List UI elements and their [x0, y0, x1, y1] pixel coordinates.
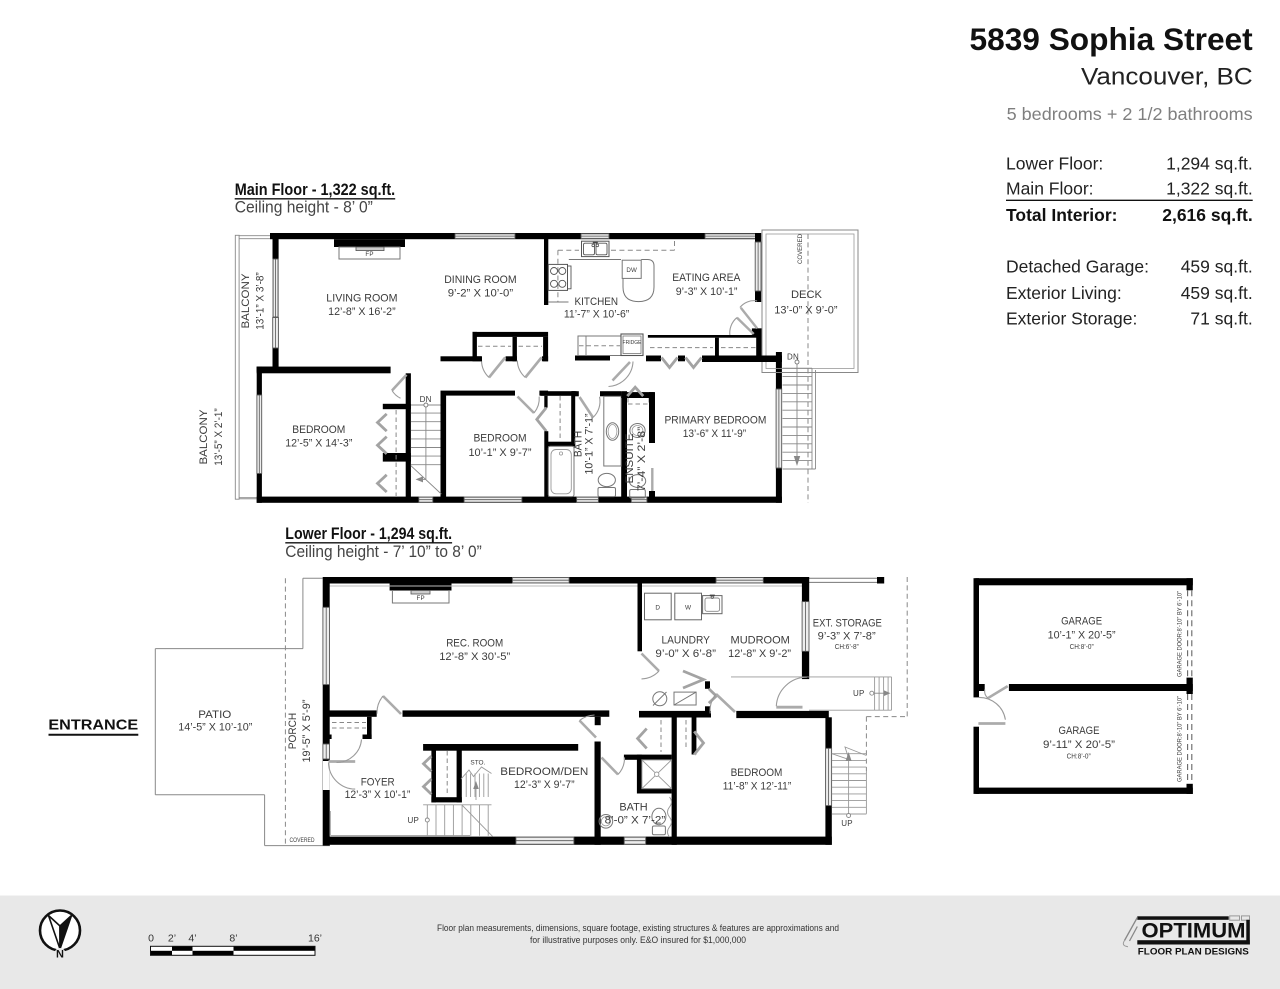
svg-text:11’-7” X 10’-6”: 11’-7” X 10’-6”: [564, 309, 630, 321]
svg-text:2’: 2’: [168, 933, 176, 945]
svg-text:BEDROOM: BEDROOM: [292, 424, 345, 436]
svg-text:OPTIMUM: OPTIMUM: [1142, 919, 1246, 943]
svg-text:Vancouver, BC: Vancouver, BC: [1081, 64, 1253, 91]
svg-text:9’-11” X 20’-5”: 9’-11” X 20’-5”: [1043, 739, 1115, 751]
svg-text:UP: UP: [841, 819, 853, 828]
svg-text:MUDROOM: MUDROOM: [731, 635, 790, 647]
svg-text:13’-1” X 3’-8”: 13’-1” X 3’-8”: [255, 272, 267, 330]
svg-text:16’: 16’: [308, 933, 322, 945]
svg-text:5839 Sophia Street: 5839 Sophia Street: [970, 21, 1254, 57]
svg-text:Ceiling height - 8’ 0”: Ceiling height - 8’ 0”: [235, 199, 373, 217]
svg-text:GARAGE DOOR:8’-10” BY 6’-10”: GARAGE DOOR:8’-10” BY 6’-10”: [1177, 696, 1184, 782]
svg-text:71 sq.ft.: 71 sq.ft.: [1190, 309, 1252, 329]
svg-text:Detached Garage:: Detached Garage:: [1006, 257, 1149, 277]
svg-text:9’-2” X 10’-0”: 9’-2” X 10’-0”: [448, 288, 514, 300]
svg-text:FP: FP: [365, 251, 373, 258]
svg-text:Floor plan measurements, dimen: Floor plan measurements, dimensions, squ…: [437, 923, 839, 934]
svg-text:459 sq.ft.: 459 sq.ft.: [1181, 257, 1253, 277]
svg-text:ENSUITE: ENSUITE: [624, 433, 636, 483]
svg-text:7’-4” X 2’-8”: 7’-4” X 2’-8”: [636, 426, 648, 491]
svg-text:10’-1” X 7’-1”: 10’-1” X 7’-1”: [584, 413, 596, 475]
svg-text:CH:6’-8”: CH:6’-8”: [835, 644, 860, 651]
svg-text:Lower Floor:: Lower Floor:: [1006, 154, 1103, 174]
svg-text:BEDROOM/DEN: BEDROOM/DEN: [500, 766, 588, 778]
svg-text:14’-5” X 10’-10”: 14’-5” X 10’-10”: [178, 722, 252, 734]
svg-text:PORCH: PORCH: [287, 713, 299, 749]
svg-text:12’-8” X 16’-2”: 12’-8” X 16’-2”: [328, 306, 396, 318]
svg-text:8’-0” X 7’-2”: 8’-0” X 7’-2”: [605, 814, 666, 826]
svg-text:PRIMARY BEDROOM: PRIMARY BEDROOM: [664, 415, 766, 427]
svg-text:12’-5” X 14’-3”: 12’-5” X 14’-3”: [285, 438, 352, 450]
svg-text:CH:8’-0”: CH:8’-0”: [1070, 644, 1095, 651]
svg-text:GARAGE: GARAGE: [1061, 616, 1102, 628]
svg-text:0: 0: [148, 933, 154, 945]
svg-text:COVERED: COVERED: [797, 234, 804, 264]
svg-text:LAUNDRY: LAUNDRY: [662, 635, 711, 647]
svg-text:W: W: [685, 605, 692, 612]
svg-text:STO.: STO.: [470, 759, 485, 766]
svg-text:Lower Floor - 1,294 sq.ft.: Lower Floor - 1,294 sq.ft.: [285, 525, 452, 543]
svg-text:9’-3” X 7’-8”: 9’-3” X 7’-8”: [818, 631, 876, 643]
svg-text:FRIDGE: FRIDGE: [623, 340, 642, 346]
svg-text:BEDROOM: BEDROOM: [473, 433, 526, 445]
svg-text:12’-8” X 9’-2”: 12’-8” X 9’-2”: [728, 648, 791, 660]
svg-text:FOYER: FOYER: [361, 776, 395, 788]
svg-text:EATING AREA: EATING AREA: [672, 272, 741, 284]
svg-text:Exterior Living:: Exterior Living:: [1006, 283, 1122, 303]
svg-text:DW: DW: [626, 267, 637, 274]
svg-text:for illustrative purposes only: for illustrative purposes only. E&O insu…: [530, 935, 746, 946]
svg-text:DECK: DECK: [791, 289, 822, 301]
svg-text:9’-3” X 10’-1”: 9’-3” X 10’-1”: [676, 286, 738, 298]
svg-text:1,322 sq.ft.: 1,322 sq.ft.: [1166, 179, 1253, 199]
svg-text:BEDROOM: BEDROOM: [731, 767, 783, 779]
svg-text:FP: FP: [417, 595, 425, 602]
svg-text:DINING ROOM: DINING ROOM: [444, 274, 516, 286]
svg-text:FLOOR PLAN DESIGNS: FLOOR PLAN DESIGNS: [1138, 947, 1249, 957]
svg-text:2,616 sq.ft.: 2,616 sq.ft.: [1162, 205, 1252, 225]
svg-text:BALCONY: BALCONY: [240, 273, 252, 328]
svg-text:8’: 8’: [229, 933, 237, 945]
svg-text:Main Floor - 1,322 sq.ft.: Main Floor - 1,322 sq.ft.: [235, 181, 396, 199]
svg-text:GARAGE: GARAGE: [1059, 725, 1100, 737]
svg-text:KITCHEN: KITCHEN: [575, 296, 619, 308]
svg-text:BATH: BATH: [619, 802, 647, 814]
svg-text:BALCONY: BALCONY: [198, 409, 210, 464]
svg-text:PATIO: PATIO: [198, 709, 231, 721]
svg-text:CH:8’-0”: CH:8’-0”: [1067, 754, 1092, 761]
svg-text:13’-0” X 9’-0”: 13’-0” X 9’-0”: [774, 305, 837, 317]
svg-text:Ceiling height - 7’ 10” to 8’: Ceiling height - 7’ 10” to 8’ 0”: [285, 543, 482, 561]
svg-text:N: N: [56, 949, 64, 961]
svg-text:LIVING ROOM: LIVING ROOM: [326, 293, 397, 305]
svg-text:459 sq.ft.: 459 sq.ft.: [1181, 283, 1253, 303]
svg-text:UP: UP: [407, 816, 419, 825]
svg-text:DN: DN: [420, 395, 432, 404]
svg-text:GARAGE DOOR:8’-10” BY 6’-10”: GARAGE DOOR:8’-10” BY 6’-10”: [1177, 591, 1184, 677]
svg-text:REC. ROOM: REC. ROOM: [446, 638, 503, 650]
svg-text:13’-5” X 2’-1”: 13’-5” X 2’-1”: [213, 408, 225, 466]
svg-text:ENTRANCE: ENTRANCE: [48, 717, 138, 734]
svg-text:D: D: [655, 605, 660, 612]
svg-text:9’-0” X 6’-8”: 9’-0” X 6’-8”: [655, 648, 716, 660]
svg-text:11’-8” X 12’-11”: 11’-8” X 12’-11”: [723, 780, 792, 792]
svg-text:19’-5” X 5’-9”: 19’-5” X 5’-9”: [301, 699, 313, 762]
svg-text:EXT. STORAGE: EXT. STORAGE: [813, 617, 882, 629]
svg-text:13’-6” X 11’-9”: 13’-6” X 11’-9”: [683, 428, 747, 440]
svg-text:10’-1” X 20’-5”: 10’-1” X 20’-5”: [1048, 630, 1116, 642]
svg-text:10’-1” X 9’-7”: 10’-1” X 9’-7”: [469, 447, 532, 459]
svg-text:4’: 4’: [188, 933, 196, 945]
svg-text:1,294 sq.ft.: 1,294 sq.ft.: [1166, 154, 1253, 174]
svg-text:5 bedrooms + 2 1/2 bathrooms: 5 bedrooms + 2 1/2 bathrooms: [1007, 104, 1253, 124]
svg-text:Total Interior:: Total Interior:: [1006, 205, 1117, 225]
svg-text:Main Floor:: Main Floor:: [1006, 179, 1094, 199]
svg-text:12’-3” X 10’-1”: 12’-3” X 10’-1”: [345, 789, 411, 801]
svg-text:Exterior Storage:: Exterior Storage:: [1006, 309, 1137, 329]
svg-text:12’-3” X 9’-7”: 12’-3” X 9’-7”: [514, 779, 575, 791]
svg-text:12’-8” X 30’-5”: 12’-8” X 30’-5”: [439, 651, 510, 663]
svg-text:COVERED: COVERED: [290, 837, 315, 844]
svg-text:UP: UP: [853, 689, 865, 698]
svg-text:DN: DN: [787, 353, 799, 362]
